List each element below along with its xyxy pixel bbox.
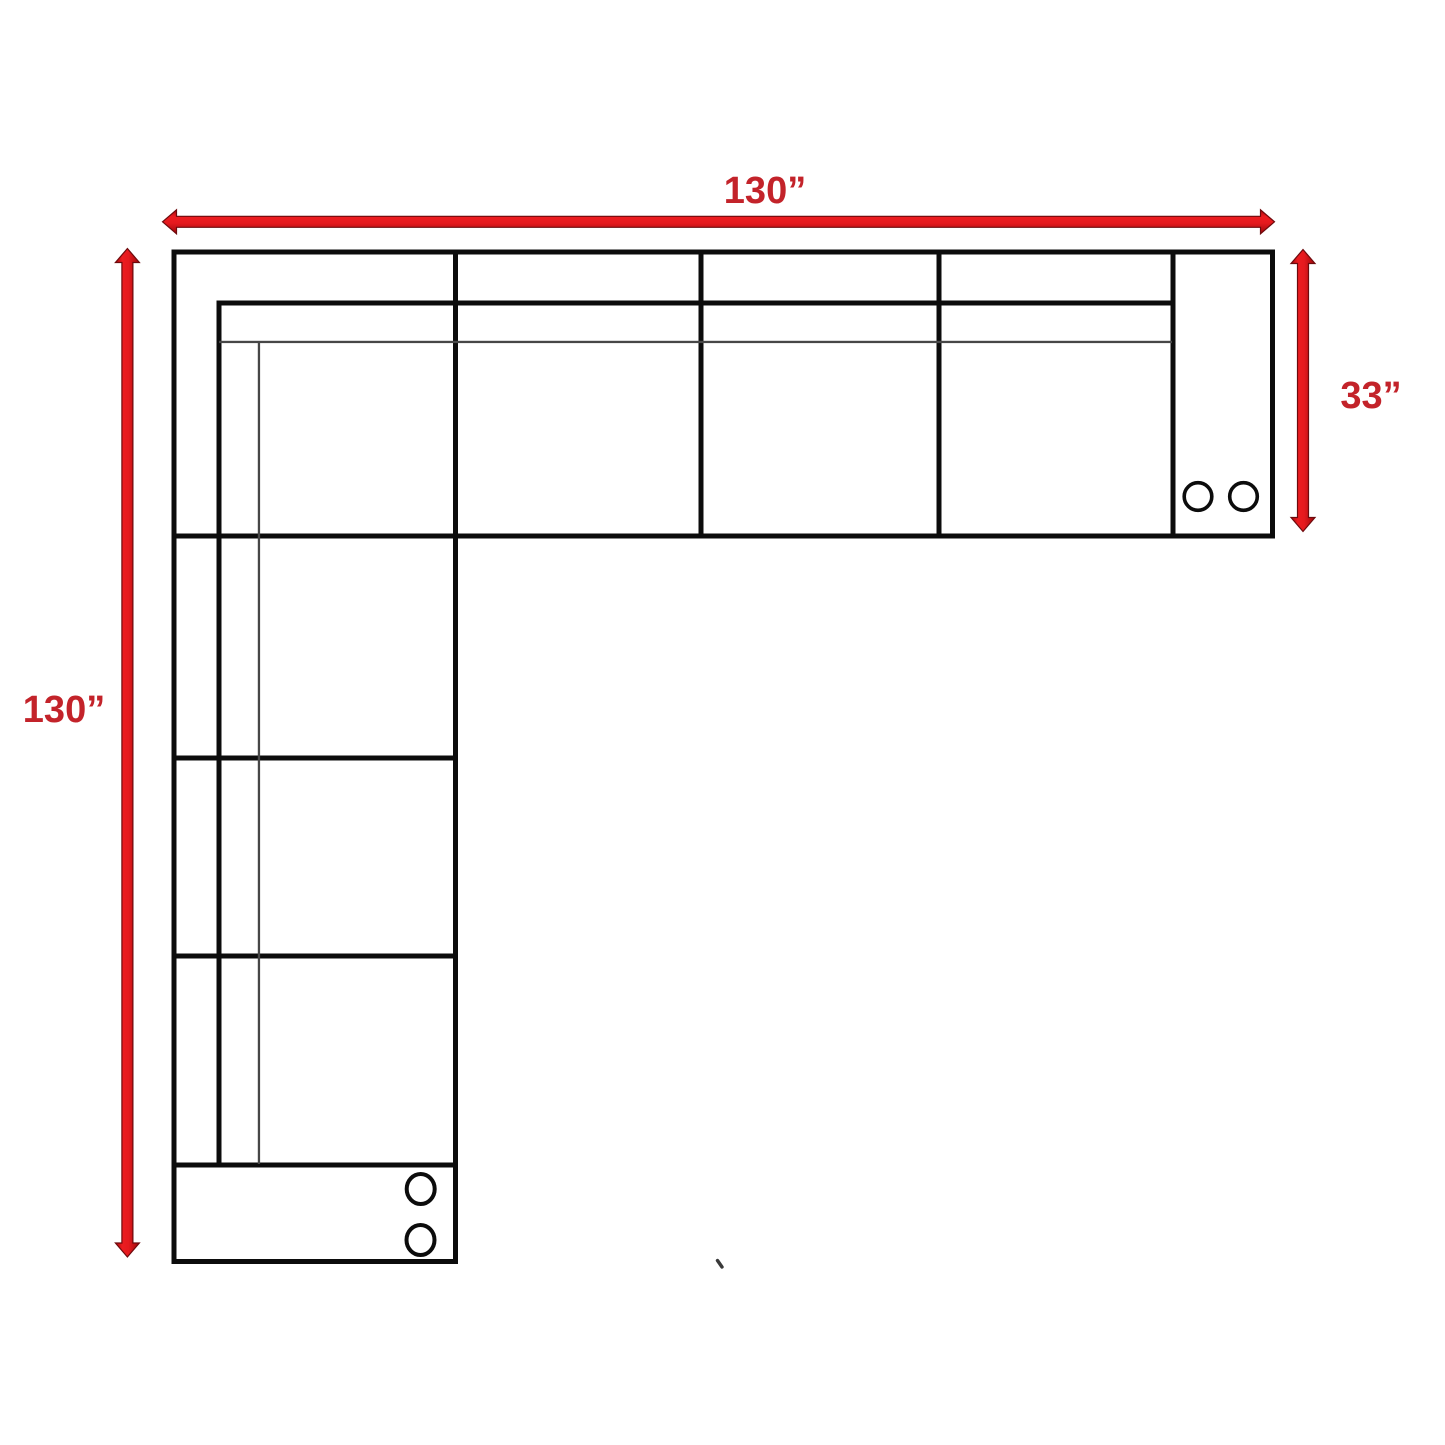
svg-text:33”: 33” <box>1340 375 1401 417</box>
svg-text:130”: 130” <box>724 170 806 212</box>
svg-text:130”: 130” <box>23 689 105 731</box>
